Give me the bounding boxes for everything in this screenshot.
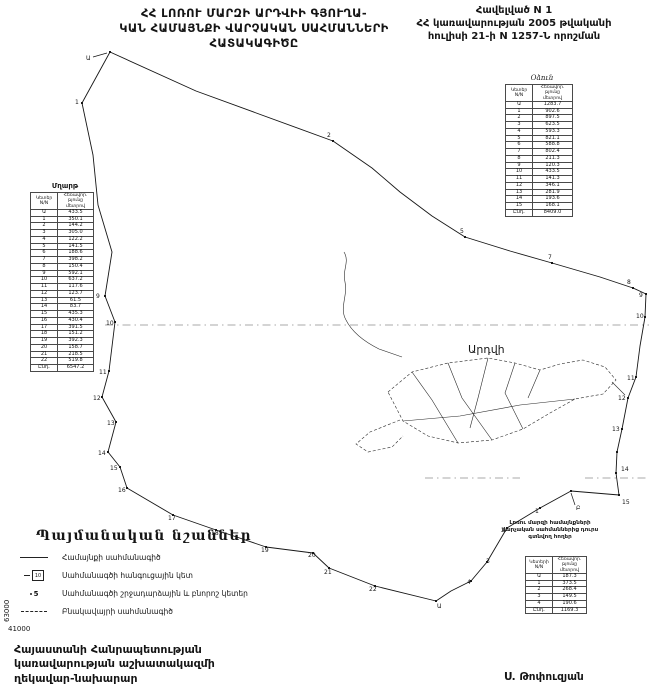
total-label-cell: Ընդ.: [526, 607, 553, 614]
boundary-point-label: 16: [118, 487, 126, 494]
table-row: 9592.1: [31, 270, 94, 277]
boundary-point-dot: [615, 472, 617, 474]
legend-item-label: Համայնքի սահմանագիծ: [62, 553, 161, 562]
table-row: 20158.7: [31, 344, 94, 351]
table-row: 5821.1: [506, 135, 573, 142]
table-row: 18151.2: [31, 331, 94, 338]
boundary-point-label: 10: [636, 313, 644, 320]
table-row: 3305.0: [31, 230, 94, 237]
annex-line3: հուլիսի 21-ի N 1257-Ն որոշման: [383, 30, 645, 43]
map-title-line3: ՀԱՏԱԿԱԳԻԾԸ: [103, 36, 405, 51]
annex-reference: Հավելված N 1 ՀՀ կառավարության 2005 թվակա…: [383, 4, 645, 44]
total-label-cell: Ընդ.: [31, 365, 58, 372]
table-header-line: N/N: [32, 201, 56, 206]
col-points-header: ԿետերN/N: [31, 193, 58, 210]
dashed-line-icon: [21, 611, 47, 612]
table-header-row: ԿետերիN/NՀեռավոր.թյունըմետրով: [526, 557, 587, 574]
boundary-point-label: Ա: [437, 603, 442, 610]
settlement-detail-line: [343, 252, 402, 357]
table-row: Ա433.5: [31, 209, 94, 216]
boundary-point-dot: [114, 321, 116, 323]
table-row: 11117.6: [31, 284, 94, 291]
boundary-point-label: 9: [639, 292, 643, 299]
outside-lands-caption: Լոռու մարզի համայնքներիվարչական սահմաննե…: [492, 520, 608, 541]
table-row: 8211.3: [506, 155, 573, 162]
grid-y-coordinate: 63000: [3, 600, 11, 622]
boundary-point-dot: [645, 293, 647, 295]
outside-lands-caption-line: Լոռու մարզի համայնքների: [492, 520, 608, 527]
col-distance-header: Հեռավոր.թյունըմետրով: [533, 85, 573, 102]
boundary-point-label: 1: [75, 99, 79, 106]
map-title-line1: ՀՀ ԼՈՌՈՒ ՄԱՐԶԻ ԱՐԴՎԻԻ ԳՅՈՒՂԱ-: [103, 6, 405, 21]
table-total-row: Ընդ.8409.0: [506, 209, 573, 216]
table-row: 7802.4: [506, 149, 573, 156]
total-label-cell: Ընդ.: [506, 209, 533, 216]
grid-x-coordinate: 41000: [8, 625, 30, 633]
boundary-point-label: 4: [467, 579, 471, 586]
boundary-point-dot: [81, 102, 83, 104]
legend-item-label: Սահմանագծի շրջադարձային և բնորոշ կետեր: [62, 589, 248, 598]
solid-line-icon: [14, 557, 54, 558]
boundary-point-label: 13: [107, 420, 115, 427]
settlement-detail-line: [403, 358, 625, 443]
table-row: 8150.4: [31, 263, 94, 270]
boundary-point-label: 12: [93, 395, 101, 402]
boundary-point-dot: [635, 376, 637, 378]
table-total-row: Ընդ.6547.2: [31, 365, 94, 372]
grid-lines: [105, 325, 649, 478]
table-total-row: Ընդ.1169.3: [526, 607, 587, 614]
table-row: 4593.3: [506, 128, 573, 135]
boundary-point-dot: [618, 494, 620, 496]
boundary-point-dot: [374, 585, 376, 587]
table-row: 7398.2: [31, 257, 94, 264]
boundary-point-dot: [551, 262, 553, 264]
node-box-icon: 10: [14, 570, 54, 581]
boundary-point-label: 17: [168, 515, 176, 522]
left-coordinate-table: ԿետերN/NՀեռավոր.թյունըմետրովԱ433.51350.1…: [30, 192, 94, 372]
settlement-name-label: Արդվի: [468, 343, 505, 356]
table-row: 12123.7: [31, 290, 94, 297]
node-box-icon: 10: [32, 570, 44, 581]
boundary-point-label: Ա: [86, 55, 91, 62]
table-row: 3149.5: [526, 594, 587, 601]
authority-line1: Հայաստանի Հանրապետության: [14, 643, 215, 657]
boundary-point-dot: [119, 466, 121, 468]
table-row: 1902.6: [506, 108, 573, 115]
table-row: 2268.4: [526, 587, 587, 594]
boundary-point-dot: [644, 316, 646, 318]
table-header-row: ԿետերN/NՀեռավոր.թյունըմետրով: [31, 193, 94, 210]
boundary-point-label: 2: [327, 132, 331, 139]
boundary-point-dot: [486, 561, 488, 563]
table-row: 19392.3: [31, 338, 94, 345]
table-row: Ա1283.7: [506, 101, 573, 108]
turn-point-icon: 5: [14, 590, 54, 598]
boundary-point-label: 10: [106, 320, 114, 327]
boundary-point-label: 1: [535, 508, 539, 515]
boundary-point-dot: [435, 600, 437, 602]
boundary-point-dot: [101, 396, 103, 398]
neighbor-label-odzun: Օձուն: [505, 74, 579, 82]
settlement-boundary: [343, 252, 625, 452]
legend-item: 10Սահմանագծի հանգուցային կետ: [14, 570, 314, 581]
table-row: 6588.8: [506, 142, 573, 149]
boundary-point-dot: [570, 490, 572, 492]
table-row: 16430.4: [31, 317, 94, 324]
boundary-point-dot: [627, 397, 629, 399]
dashed-line-icon: [14, 611, 54, 612]
boundary-point-dot: [328, 567, 330, 569]
col-distance-header: Հեռավոր.թյունըմետրով: [58, 193, 94, 210]
outside-lands-caption-line: վարչական սահմաններից դուրս: [492, 527, 608, 534]
legend-item: Բնակավայրի սահմանագիծ: [14, 606, 314, 617]
boundary-point-label: 8: [627, 279, 631, 286]
table-row: 1361.5: [31, 297, 94, 304]
settlement-boundary-line: [388, 358, 616, 443]
boundary-point-label: 3: [486, 558, 490, 565]
boundary-point-dot: [115, 421, 117, 423]
table-row: 4122.2: [31, 236, 94, 243]
outside-lands-caption-line: գտնվող հողեր: [492, 534, 608, 541]
signature-name: Ս. Թոփուզյան: [504, 671, 584, 683]
col-points-header: ԿետերN/N: [506, 85, 533, 102]
boundary-point-label: Բ: [576, 505, 580, 512]
outside-lands-table-block: ԿետերիN/NՀեռավոր.թյունըմետրովԱ187.31373.…: [525, 556, 591, 614]
right-coordinate-table-block: Օձուն ԿետերN/NՀեռավոր.թյունըմետրովԱ1283.…: [505, 74, 579, 217]
authority-line2: կառավարության աշխատակազմի: [14, 657, 215, 671]
boundary-point-dot: [108, 370, 110, 372]
table-header-line: N/N: [507, 93, 531, 98]
point-leader-line: [571, 493, 575, 505]
boundary-point-dot: [632, 287, 634, 289]
boundary-point-label: 14: [98, 450, 106, 457]
table-row: 1373.5: [526, 580, 587, 587]
boundary-point-dot: [470, 580, 472, 582]
right-coordinate-table: ԿետերN/NՀեռավոր.թյունըմետրովԱ1283.71902.…: [505, 84, 573, 217]
table-row: 1350.1: [31, 216, 94, 223]
boundary-point-label: 15: [622, 499, 630, 506]
boundary-point-label: 12: [618, 395, 626, 402]
legend-item: Համայնքի սահմանագիծ: [14, 552, 314, 563]
boundary-point-dot: [109, 51, 111, 53]
boundary-point-dot: [539, 507, 541, 509]
legend-title: Պայմանական նշաններ: [36, 528, 314, 544]
neighbor-label-mghart: Մղարթ: [30, 182, 100, 190]
boundary-point-label: 13: [612, 426, 620, 433]
legend-item: 5Սահմանագծի շրջադարձային և բնորոշ կետեր: [14, 588, 314, 599]
dot-icon: [30, 593, 32, 595]
boundary-point-dot: [464, 236, 466, 238]
boundary-point-label: 7: [548, 254, 552, 261]
total-value-cell: 1169.3: [553, 607, 587, 614]
table-header-row: ԿետերN/NՀեռավոր.թյունըմետրով: [506, 85, 573, 102]
settlement-boundary-line: [356, 420, 403, 452]
boundary-point-dot: [616, 451, 618, 453]
boundary-point-label: 11: [99, 369, 107, 376]
boundary-point-dot: [332, 140, 334, 142]
map-title: ՀՀ ԼՈՌՈՒ ՄԱՐԶԻ ԱՐԴՎԻԻ ԳՅՈՒՂԱ- ԿԱՆ ՀԱՄԱՅՆ…: [103, 6, 405, 51]
boundary-point-dot: [104, 295, 106, 297]
boundary-point-label: 22: [369, 586, 377, 593]
boundary-point-label: 21: [324, 569, 332, 576]
total-value-cell: 8409.0: [533, 209, 573, 216]
table-row: 5141.5: [31, 243, 94, 250]
table-row: 21218.5: [31, 351, 94, 358]
table-header-line: N/N: [527, 565, 551, 570]
legend-items: Համայնքի սահմանագիծ10Սահմանագծի հանգուցա…: [14, 552, 314, 617]
total-value-cell: 6547.2: [58, 365, 94, 372]
boundary-point-label: 14: [621, 466, 629, 473]
map-title-line2: ԿԱՆ ՀԱՄԱՅՆՔԻ ՎԱՐՉԱԿԱՆ ՍԱՀՄԱՆՆԵՐԻ: [103, 21, 405, 36]
signing-authority: Հայաստանի Հանրապետության կառավարության ա…: [14, 643, 215, 686]
table-row: 2897.5: [506, 115, 573, 122]
point-leader-line: [93, 53, 107, 57]
solid-line-icon: [20, 557, 48, 558]
table-row: 15435.3: [31, 311, 94, 318]
boundary-point-dot: [172, 514, 174, 516]
turn-point-icon: 5: [34, 590, 39, 598]
left-coordinate-table-block: Մղարթ ԿետերN/NՀեռավոր.թյունըմետրովԱ433.5…: [30, 182, 100, 372]
boundary-point-label: 15: [110, 465, 118, 472]
table-row: 1483.7: [31, 304, 94, 311]
authority-line3: ղեկավար-նախարար: [14, 672, 215, 686]
table-row: 10637.2: [31, 277, 94, 284]
legend-item-label: Սահմանագծի հանգուցային կետ: [62, 571, 193, 580]
outside-lands-table: ԿետերիN/NՀեռավոր.թյունըմետրովԱ187.31373.…: [525, 556, 587, 614]
annex-line1: Հավելված N 1: [383, 4, 645, 17]
table-row: 17391.5: [31, 324, 94, 331]
table-row: 2144.2: [31, 223, 94, 230]
table-row: 6188.6: [31, 250, 94, 257]
boundary-point-dot: [126, 487, 128, 489]
boundary-point-label: 11: [627, 375, 635, 382]
boundary-point-label: 5: [460, 228, 464, 235]
table-row: Ա187.3: [526, 573, 587, 580]
boundary-point-dot: [621, 428, 623, 430]
annex-line2: ՀՀ կառավարության 2005 թվականի: [383, 17, 645, 30]
legend: Պայմանական նշաններ Համայնքի սահմանագիծ10…: [14, 528, 314, 624]
col-points-header: ԿետերիN/N: [526, 557, 553, 574]
col-distance-header: Հեռավոր.թյունըմետրով: [553, 557, 587, 574]
table-row: 3623.5: [506, 122, 573, 129]
legend-item-label: Բնակավայրի սահմանագիծ: [62, 607, 173, 616]
boundary-point-dot: [107, 451, 109, 453]
tick-icon: [24, 575, 30, 576]
